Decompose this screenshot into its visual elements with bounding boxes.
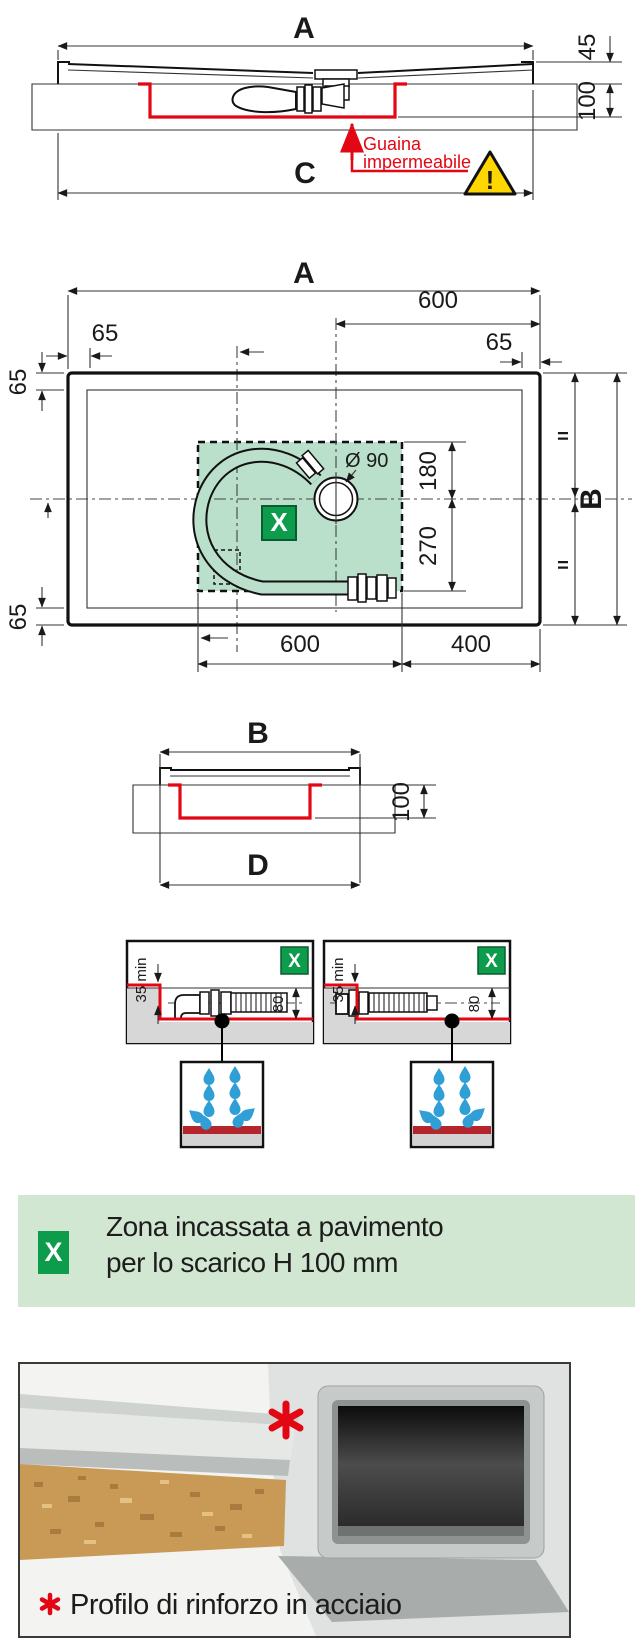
plan-dimension-180-270: 180 270: [404, 442, 466, 591]
svg-text:Ø 90: Ø 90: [345, 450, 388, 472]
svg-text:600: 600: [280, 631, 320, 658]
svg-text:35 min: 35 min: [133, 957, 150, 1002]
svg-text:B: B: [575, 488, 608, 510]
zone-badge: X: [262, 506, 296, 540]
svg-text:C: C: [294, 157, 316, 190]
svg-text:Guaina: Guaina: [363, 134, 422, 154]
connection-dot: [215, 1014, 230, 1029]
caption-text: Profilo di rinforzo in acciaio: [70, 1589, 402, 1621]
photo-caption: Profilo di rinforzo in acciaio: [42, 1589, 402, 1621]
plan-view-drawing: Ø 90 X A 600 65 6: [0, 235, 635, 690]
svg-text:100: 100: [574, 81, 601, 121]
photo-illustration: Profilo di rinforzo in acciaio: [20, 1364, 569, 1636]
dimension-a: A: [58, 12, 533, 60]
svg-text:X: X: [485, 951, 498, 972]
plan-dimension-65-top-left: 65: [46, 320, 118, 368]
legend-banner: X Zona incassata a pavimento per lo scar…: [18, 1195, 635, 1307]
long-cross-section-drawing: A 45 100 C Guaina i: [0, 0, 635, 235]
svg-text:A: A: [293, 257, 315, 290]
svg-text:impermeabile: impermeabile: [363, 152, 471, 172]
reinforcement-profile-photo: Profilo di rinforzo in acciaio: [18, 1362, 571, 1638]
plan-dimension-600-400-bottom: 600 400: [198, 593, 540, 672]
dimension-45: 45: [536, 34, 622, 62]
detail-badge: X: [478, 947, 505, 974]
straight-pipe: [336, 990, 437, 1016]
svg-text:65: 65: [92, 320, 119, 347]
svg-text:180: 180: [415, 451, 442, 491]
dimension-100: 100: [398, 81, 622, 121]
svg-text:65: 65: [486, 329, 513, 356]
detail-badge: X: [281, 947, 308, 974]
floor-slab: [133, 785, 395, 833]
detail-box-elbow: X 35 min 80: [127, 941, 313, 1062]
dimension-100: 100: [315, 782, 436, 822]
svg-text:!: !: [486, 165, 495, 195]
waterproof-membrane-note: Guaina impermeabile: [352, 124, 471, 172]
legend-text-line2: per lo scarico H 100 mm: [106, 1247, 398, 1279]
connection-dot: [445, 1014, 460, 1029]
shower-spray-box: [181, 1062, 263, 1147]
warning-icon: !: [465, 152, 515, 195]
plan-dimension-600-top: 600: [336, 287, 540, 324]
detail-box-straight: X 35 min 80: [324, 941, 510, 1062]
svg-text:80: 80: [270, 996, 287, 1013]
recess-outline-red: [168, 785, 322, 818]
svg-text:400: 400: [451, 631, 491, 658]
svg-text:B: B: [247, 717, 269, 750]
svg-text:270: 270: [415, 526, 442, 566]
shower-spray-box: [411, 1062, 493, 1147]
installation-diagram-page: A 45 100 C Guaina i: [0, 0, 635, 1650]
svg-text:45: 45: [574, 34, 601, 61]
svg-text:=: =: [557, 555, 569, 577]
plan-dimension-65-side-bottom: 65: [5, 503, 64, 646]
steel-profile-opening: [318, 1386, 544, 1558]
svg-text:100: 100: [388, 782, 415, 822]
svg-text:600: 600: [418, 287, 458, 314]
drain-detail-views: X 35 min 80: [0, 880, 635, 1195]
shower-tray-section: [160, 768, 360, 785]
plan-dimension-65-top-right: 65: [486, 329, 562, 368]
svg-text:65: 65: [5, 369, 32, 396]
plan-dimension-a: A: [68, 257, 540, 369]
svg-text:65: 65: [5, 604, 32, 631]
svg-text:=: =: [557, 426, 569, 448]
shower-tray-section: [58, 62, 533, 87]
svg-text:80: 80: [466, 996, 483, 1013]
legend-badge: X: [38, 1231, 69, 1274]
chipboard-core: [20, 1464, 286, 1560]
short-cross-section-drawing: B 100 D: [0, 690, 635, 900]
drain-trap: [232, 84, 349, 113]
svg-text:A: A: [293, 12, 315, 45]
svg-text:X: X: [288, 951, 301, 972]
svg-text:35 min: 35 min: [330, 957, 347, 1002]
plan-dimension-65-side-top: 65: [5, 352, 64, 411]
svg-text:X: X: [270, 507, 288, 537]
svg-text:D: D: [247, 849, 269, 882]
legend-text-line1: Zona incassata a pavimento: [106, 1211, 443, 1243]
